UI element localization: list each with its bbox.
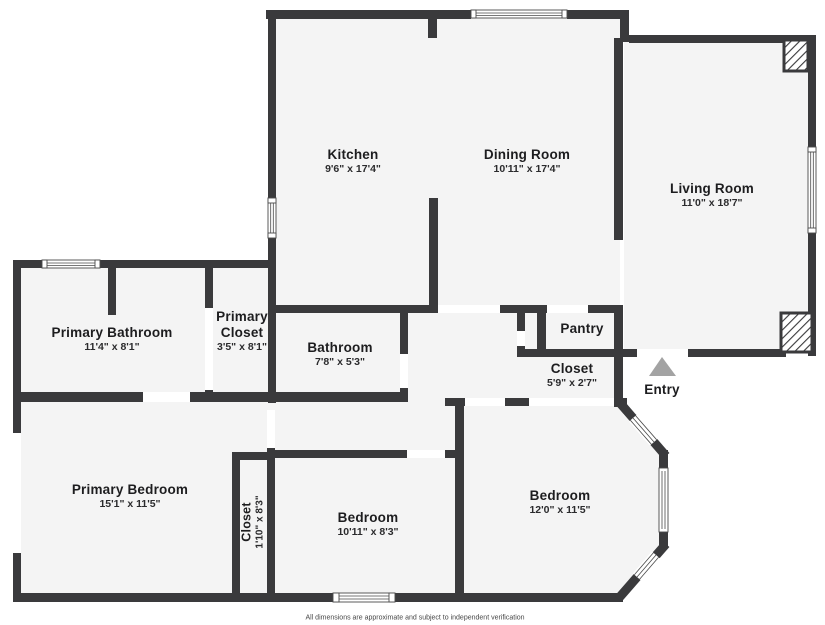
floorplan-drawing [0,0,825,625]
floorplan: Kitchen 9'6" x 17'4" Dining Room 10'11" … [0,0,825,625]
room-name: Closet [547,361,597,377]
room-name: Primary [216,309,268,325]
room-name: Primary Bedroom [72,482,188,498]
room-name: Dining Room [484,147,570,163]
room-label-dining: Dining Room 10'11" x 17'4" [484,147,570,175]
room-name: Closet [240,495,255,548]
room-name: Bedroom [337,510,398,526]
room-name: Living Room [670,181,754,197]
room-name: Bathroom [307,340,372,356]
room-name: Bedroom [529,488,590,504]
room-dims: 7'8" x 5'3" [307,356,372,368]
disclaimer-text: All dimensions are approximate and subje… [305,615,524,622]
room-dims: 3'5" x 8'1" [216,341,268,353]
room-dims: 10'11" x 17'4" [484,163,570,175]
room-label-living: Living Room 11'0" x 18'7" [670,181,754,209]
room-dims: 5'9" x 2'7" [547,377,597,389]
room-label-bathroom: Bathroom 7'8" x 5'3" [307,340,372,368]
entry-direction-triangle [649,357,676,376]
room-dims: 9'6" x 17'4" [325,163,381,175]
room-label-pantry: Pantry [560,321,603,337]
room-dims: 11'4" x 8'1" [52,341,173,353]
room-label-entry: Entry [644,382,680,398]
room-name: Pantry [560,321,603,337]
room-dims: 12'0" x 11'5" [529,504,590,516]
room-name: Kitchen [325,147,381,163]
room-dims: 11'0" x 18'7" [670,197,754,209]
room-label-kitchen: Kitchen 9'6" x 17'4" [325,147,381,175]
room-label-hall-closet: Closet 5'9" x 2'7" [547,361,597,389]
room-label-primary-bathroom: Primary Bathroom 11'4" x 8'1" [52,325,173,353]
room-name: Entry [644,382,680,398]
room-label-primary-closet: Primary Closet 3'5" x 8'1" [216,309,268,353]
room-name: Primary Bathroom [52,325,173,341]
room-label-bedroom-right: Bedroom 12'0" x 11'5" [529,488,590,516]
room-dims: 1'10" x 8'3" [254,495,266,548]
room-label-primary-bedroom: Primary Bedroom 15'1" x 11'5" [72,482,188,510]
room-name: Closet [216,325,268,341]
room-label-bedroom-closet: Closet 1'10" x 8'3" [240,495,267,548]
room-dims: 10'11" x 8'3" [337,526,398,538]
room-label-bedroom-middle: Bedroom 10'11" x 8'3" [337,510,398,538]
room-dims: 15'1" x 11'5" [72,498,188,510]
